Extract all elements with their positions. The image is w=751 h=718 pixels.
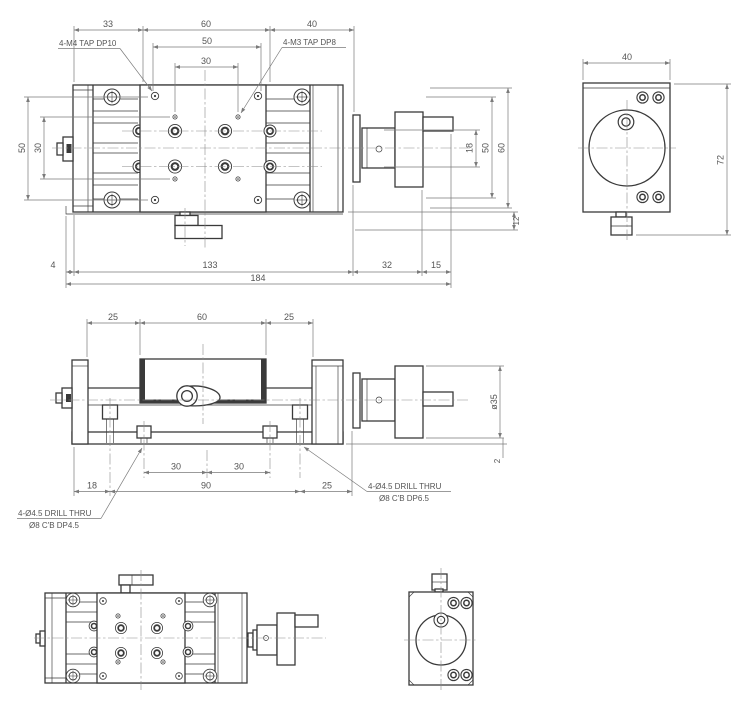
- label-drill-left-2: Ø8 C'B DP4.5: [29, 521, 80, 530]
- drawing-page: 33 60 40 50 30 4-M4 TAP DP10 4-M3 TAP DP…: [0, 0, 751, 713]
- dim-plan-12-right: 12: [512, 216, 521, 225]
- dim-plan-30-holes: 30: [201, 56, 211, 66]
- dim-plan-15: 15: [431, 260, 441, 270]
- dim-plan-133: 133: [202, 260, 217, 270]
- dim-plan-40: 40: [307, 19, 317, 29]
- label-drill-right-2: Ø8 C'B DP6.5: [379, 494, 430, 503]
- dim-plan-30-left: 30: [33, 143, 43, 153]
- dim-side-30-a: 30: [171, 462, 181, 472]
- dim-plan-184: 184: [250, 273, 265, 283]
- plan-carriage-plate: [140, 85, 266, 212]
- dim-end-40: 40: [622, 52, 632, 62]
- end2-handle: [432, 574, 447, 592]
- dim-plan-4: 4: [50, 260, 55, 270]
- dim-plan-33: 33: [103, 19, 113, 29]
- dim-side-25-right: 25: [284, 312, 294, 322]
- dim-plan-50-holes: 50: [202, 36, 212, 46]
- dim-plan-50-right: 50: [481, 143, 491, 153]
- dim-side-60-top: 60: [197, 312, 207, 322]
- label-drill-right-1: 4-Ø4.5 DRILL THRU: [368, 482, 442, 491]
- dim-side-25-bottom: 25: [322, 481, 332, 491]
- dim-plan-60-top: 60: [201, 19, 211, 29]
- dim-side-2: 2: [493, 458, 502, 463]
- dim-side-dia35: ø35: [489, 394, 499, 410]
- drawing-canvas: 33 60 40 50 30 4-M4 TAP DP10 4-M3 TAP DP…: [0, 0, 751, 713]
- dim-side-30-b: 30: [234, 462, 244, 472]
- dim-plan-50-left: 50: [17, 143, 27, 153]
- dim-plan-18-right: 18: [465, 143, 475, 153]
- dim-plan-32: 32: [382, 260, 392, 270]
- label-tap-m3: 4-M3 TAP DP8: [283, 38, 336, 47]
- label-drill-left-1: 4-Ø4.5 DRILL THRU: [18, 509, 92, 518]
- label-tap-m4: 4-M4 TAP DP10: [59, 39, 117, 48]
- dim-side-25-left: 25: [108, 312, 118, 322]
- dim-side-18: 18: [87, 481, 97, 491]
- dim-end-72: 72: [716, 155, 726, 165]
- dim-plan-60-right: 60: [497, 143, 507, 153]
- dim-side-90: 90: [201, 481, 211, 491]
